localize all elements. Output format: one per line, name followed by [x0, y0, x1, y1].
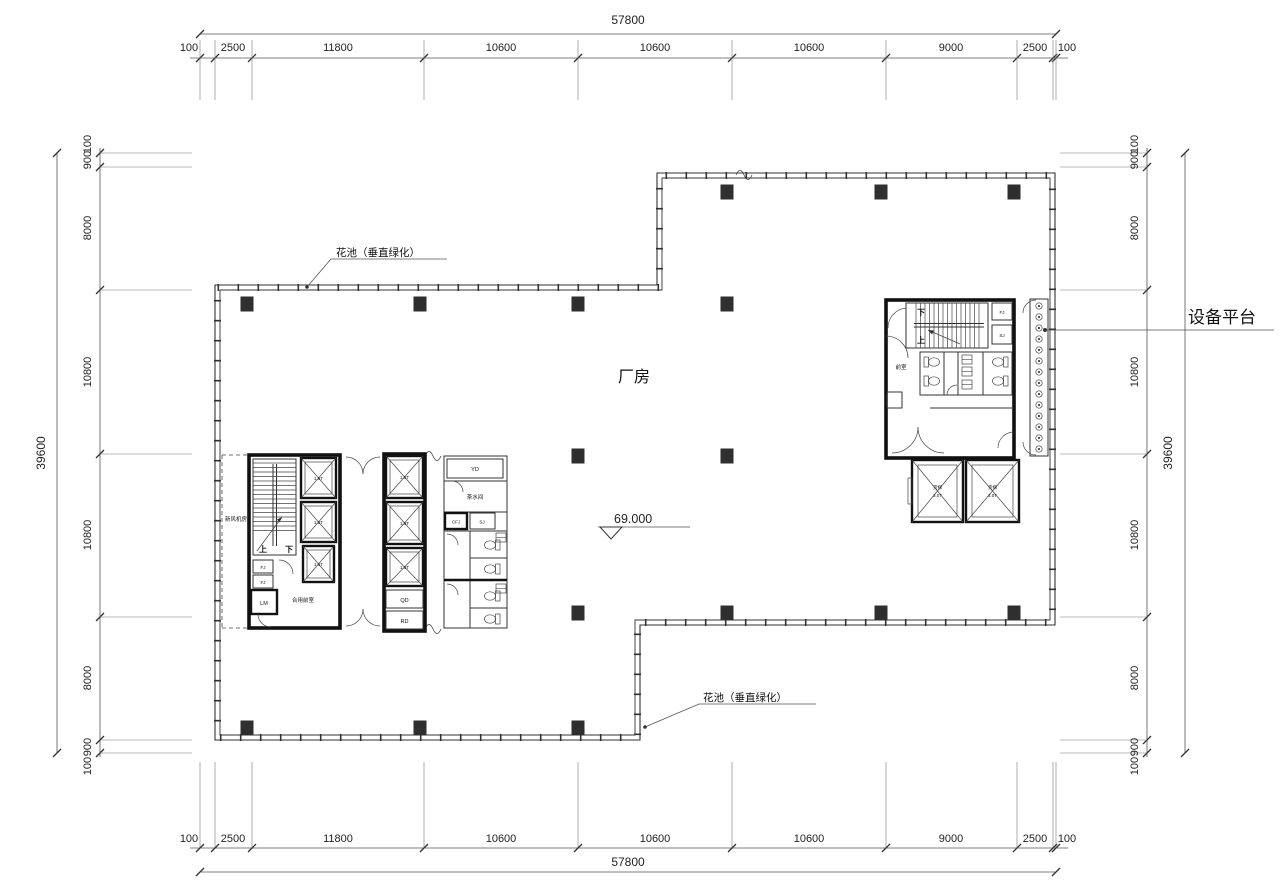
- freight-elevators: 货梯 3.0T 货梯 3.0T: [908, 460, 1019, 522]
- toilet-fixture: [993, 376, 1009, 386]
- elevator-label: 1.6T: [314, 476, 323, 481]
- dim-label: 8000: [1129, 666, 1141, 690]
- dim-label: 100: [1058, 42, 1076, 54]
- wall-break-mark: [425, 452, 441, 461]
- elevator-shaft: 1.6T: [386, 502, 423, 544]
- freight-elevator-label: 货梯: [988, 484, 997, 491]
- toilet-fixture: [485, 614, 501, 624]
- elevator-shaft: 1.6T: [386, 456, 423, 498]
- dim-label: 10600: [794, 42, 825, 54]
- wall-break-mark: [425, 625, 441, 634]
- elevator-bank-1: 1.6T 1.6T 1.6T: [301, 458, 336, 582]
- room-label-yd: YD: [471, 467, 479, 473]
- front-room-label: 前室: [895, 363, 907, 371]
- dim-label: 10800: [82, 520, 94, 551]
- equipment-platform-callout: 设备平台: [1043, 308, 1274, 332]
- dim-label: 2500: [1023, 42, 1047, 54]
- stair-direction-arrow: [928, 330, 934, 335]
- floor-plan-canvas: 57800 100 2500 11800 10600 10600 10600 9…: [0, 0, 1280, 892]
- dim-label: 9000: [939, 42, 963, 54]
- structural-columns: [241, 185, 1021, 736]
- elevator-shaft: 1.6T: [386, 548, 423, 586]
- equipment-platform-label: 设备平台: [1188, 308, 1256, 327]
- level-value: 69.000: [614, 512, 652, 526]
- dim-total-bottom: 57800: [611, 855, 645, 869]
- room-label-lm: LM: [260, 601, 268, 607]
- dim-label: 100: [180, 42, 198, 54]
- dim-label: 10600: [486, 833, 517, 845]
- factory-room-label: 厂房: [618, 368, 650, 386]
- elevator-shaft: 1.6T: [301, 458, 336, 498]
- right-service-core: 下 上 FJ SJ 前室: [886, 299, 1048, 522]
- stair-up-label: 上: [917, 335, 925, 345]
- dimension-chain-bottom: 100 2500 11800 10600 10600 10600 9000 25…: [180, 762, 1076, 876]
- dim-label: 11800: [323, 833, 353, 845]
- dimension-chain-top: 57800 100 2500 11800 10600 10600 10600 9…: [180, 13, 1076, 100]
- fresh-air-room-label: 新风机房: [225, 515, 248, 523]
- combined-lobby-label: 合用前室: [292, 596, 315, 604]
- washroom-strip: YD 茶水间 CFJ SJ: [444, 456, 507, 628]
- dim-label: 900: [1129, 738, 1141, 756]
- dim-label: 100: [1058, 833, 1076, 845]
- sink: [962, 355, 972, 364]
- freight-elevator-capacity: 3.0T: [988, 493, 997, 498]
- elevator-shaft: 1.6T: [303, 546, 334, 582]
- toilet-block-right-core: [920, 352, 1012, 408]
- room-label-qd: QD: [400, 598, 408, 604]
- toilet-fixture: [485, 540, 501, 550]
- dim-total-top: 57800: [611, 13, 645, 27]
- tea-room-label: 茶水间: [467, 493, 484, 501]
- dim-label: 8000: [82, 216, 94, 240]
- dim-label: 10600: [486, 42, 517, 54]
- dim-label: 2500: [221, 833, 245, 845]
- stair-down-label: 下: [285, 545, 293, 554]
- stair-down-label: 下: [917, 308, 925, 317]
- toilet-fixture: [993, 357, 1009, 367]
- dim-label: 11800: [323, 42, 353, 54]
- dim-label: 900: [1129, 151, 1141, 169]
- elevator-label: 1.6T: [400, 475, 409, 480]
- room-label-sj: SJ: [999, 333, 1004, 338]
- dim-label: 9000: [939, 833, 963, 845]
- dim-extension-lines-left: [100, 153, 192, 753]
- dim-label: 100: [82, 757, 94, 775]
- toilet-fixture: [924, 357, 940, 367]
- room-label-cfj: CFJ: [452, 520, 460, 525]
- sink: [962, 367, 972, 376]
- elevator-label: 1.6T: [400, 521, 409, 526]
- dim-label: 10800: [1129, 520, 1141, 551]
- dim-label: 10600: [640, 42, 671, 54]
- toilet-fixture: [924, 376, 940, 386]
- stair-up-label: 上: [259, 544, 267, 554]
- dim-label: 8000: [82, 666, 94, 690]
- floor-plan-drawing: 57800 100 2500 11800 10600 10600 10600 9…: [0, 0, 1280, 892]
- dim-extension-lines-right: [1060, 153, 1147, 753]
- dim-label: 100: [82, 135, 94, 153]
- freight-elevator-shaft: 货梯 3.0T: [966, 460, 1019, 522]
- dim-total-right: 39600: [1161, 436, 1175, 470]
- freight-elevator-capacity: 3.0T: [933, 493, 942, 498]
- planter-callout-bottom: 花池（垂直绿化）: [643, 691, 816, 729]
- planter-label: 花池（垂直绿化）: [703, 691, 787, 704]
- dim-label: 100: [1129, 135, 1141, 153]
- annotations: 厂房 69.000 花池（垂直绿化） 花池（垂直绿化） 设备平台: [305, 246, 1274, 729]
- room-label-rd: RD: [401, 619, 409, 625]
- planter-label: 花池（垂直绿化）: [336, 246, 420, 259]
- elevator-label: 1.6T: [400, 565, 409, 570]
- dim-label: 900: [82, 738, 94, 756]
- freight-elevator-label: 货梯: [933, 484, 942, 491]
- planter-callout-top: 花池（垂直绿化）: [305, 246, 447, 289]
- dim-label: 2500: [1023, 833, 1047, 845]
- elevator-label: 1.6T: [314, 520, 323, 525]
- dim-label: 10800: [82, 357, 94, 388]
- room-label-fj: FJ: [1000, 310, 1005, 315]
- elevator-shaft: 1.6T: [301, 502, 336, 542]
- left-service-core: 新风机房 上 下: [222, 452, 507, 634]
- dim-label: 900: [82, 151, 94, 169]
- toilet-fixture: [485, 591, 501, 601]
- dim-label: 10800: [1129, 357, 1141, 388]
- stair-right: 下 上: [888, 303, 988, 348]
- equipment-platform-strip: [1023, 299, 1048, 456]
- platform-vents: [1036, 303, 1042, 452]
- sink: [962, 380, 972, 389]
- dim-label: 2500: [221, 42, 245, 54]
- elevator-label: 1.6T: [314, 562, 323, 567]
- dim-label: 100: [180, 833, 198, 845]
- room-label-fj: FJ: [261, 580, 266, 585]
- toilet-fixture: [485, 564, 501, 574]
- dim-label: 8000: [1129, 216, 1141, 240]
- dim-label: 10600: [640, 833, 671, 845]
- fresh-air-room: 新风机房: [222, 455, 249, 628]
- dimension-chain-right: 100 900 8000 10800 10800 8000 900 100 39…: [1060, 135, 1189, 775]
- dim-label: 10600: [794, 833, 825, 845]
- service-rooms-left: FJ FJ LM 合用前室: [251, 560, 314, 627]
- room-label-sj: SJ: [479, 520, 484, 525]
- sink: [496, 533, 506, 542]
- dim-total-left: 39600: [34, 436, 48, 470]
- level-marker: 69.000: [598, 512, 690, 539]
- freight-elevator-shaft: 货梯 3.0T: [908, 460, 963, 522]
- sink: [496, 584, 506, 593]
- elevator-bank-2: 1.6T 1.6T 1.6T QD RD: [386, 456, 423, 629]
- stair-left: 上 下: [253, 459, 296, 555]
- room-label-fj: FJ: [261, 565, 266, 570]
- dim-label: 100: [1129, 757, 1141, 775]
- dimension-chain-left: 39600 100 900 8000 10800 10800 8000 900 …: [34, 135, 192, 775]
